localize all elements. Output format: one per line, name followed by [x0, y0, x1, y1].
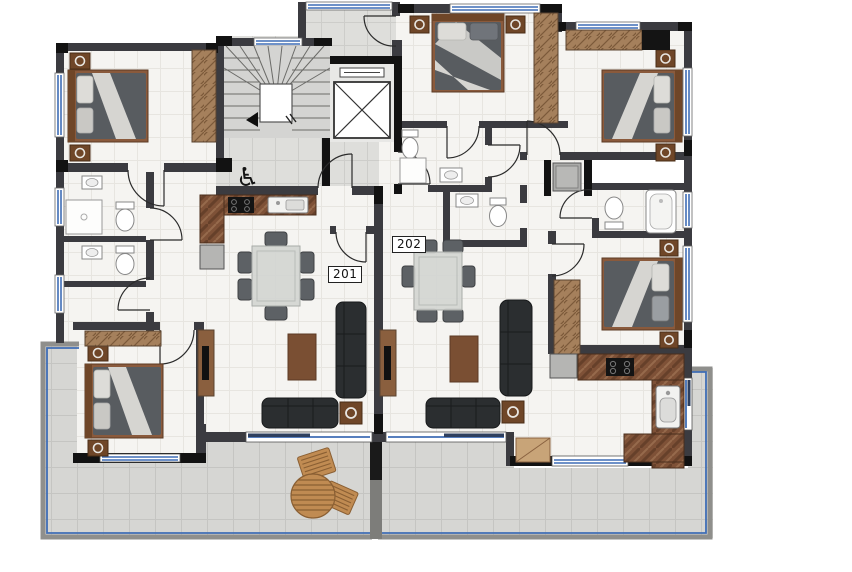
- stove: [228, 197, 254, 213]
- window-left-bedroom1: [55, 73, 64, 137]
- tv-unit-202: [380, 330, 396, 396]
- chair: [402, 266, 415, 287]
- wardrobe-bedroom2-201: [85, 331, 161, 346]
- chair: [443, 309, 463, 322]
- bed-bedroom-right1-202: [602, 70, 682, 142]
- chair: [443, 240, 463, 253]
- chair: [300, 252, 314, 273]
- floor-plan-canvas: ♿: [0, 0, 852, 572]
- stove: [606, 358, 634, 376]
- chair: [300, 279, 314, 300]
- wardrobe-bedroom-top-202: [534, 13, 558, 123]
- side-table: [502, 401, 524, 423]
- chair: [265, 232, 287, 246]
- window-stair: [254, 38, 302, 46]
- sofa: [262, 398, 338, 428]
- fridge: [200, 245, 224, 269]
- chair: [462, 266, 475, 287]
- toilet: [116, 246, 134, 275]
- bed-bedroom1-201: [68, 70, 148, 142]
- wardrobe-bedroom-right2-202: [554, 280, 580, 358]
- chair: [265, 306, 287, 320]
- stair-void: [260, 84, 292, 122]
- dining-table: [414, 252, 462, 310]
- toilet: [402, 130, 418, 159]
- sofa: [336, 302, 366, 398]
- shower: [400, 158, 426, 183]
- side-table: [340, 402, 362, 424]
- balcony-divider-wall: [370, 436, 382, 480]
- washing-machine: [553, 163, 581, 191]
- tv-unit-201: [198, 330, 214, 396]
- sliding-door-living-202: [386, 432, 506, 442]
- window-left-bath1: [55, 188, 64, 226]
- bed-bedroom-right2-202: [602, 258, 682, 330]
- bed-bedroom-top-202: [432, 14, 504, 92]
- elevator: [330, 64, 394, 142]
- toilet: [116, 202, 134, 231]
- sliding-door-living-201: [246, 432, 372, 442]
- coffee-table: [288, 334, 316, 380]
- dining-table: [252, 246, 300, 306]
- staircase: [224, 46, 330, 138]
- window-terrace: [306, 2, 392, 10]
- bed-bedroom2-201: [85, 364, 163, 438]
- chair: [417, 309, 437, 322]
- chair: [238, 279, 252, 300]
- wardrobe-bedroom1-201: [192, 50, 216, 142]
- sofa: [500, 300, 532, 396]
- kitchen-sink: [656, 386, 680, 428]
- window-right-bedroom1: [683, 68, 692, 136]
- window-bedroom2-bottom: [100, 454, 180, 462]
- unit-label-202: 202: [392, 236, 426, 253]
- chair: [238, 252, 252, 273]
- window-right-bath: [683, 192, 692, 228]
- counter: [624, 434, 684, 462]
- wardrobe-bedroom-right1-202: [566, 30, 670, 50]
- unit-label-201: 201: [328, 266, 362, 283]
- fridge: [550, 354, 577, 378]
- shower: [66, 200, 102, 234]
- toilet: [605, 197, 623, 229]
- wheelchair-icon: ♿: [236, 163, 259, 193]
- bathtub: [646, 190, 676, 233]
- window-kitchen-bottom: [552, 456, 628, 466]
- counter: [200, 195, 224, 243]
- floor-plan-drawing: ♿: [0, 0, 852, 572]
- window-right-bedroom2: [683, 246, 692, 322]
- window-bedroom-top-202: [450, 4, 540, 13]
- sofa: [426, 398, 500, 428]
- coffee-table: [450, 336, 478, 382]
- kitchen-sink: [268, 197, 308, 213]
- toilet: [490, 198, 507, 227]
- window-left-bath2: [55, 275, 64, 313]
